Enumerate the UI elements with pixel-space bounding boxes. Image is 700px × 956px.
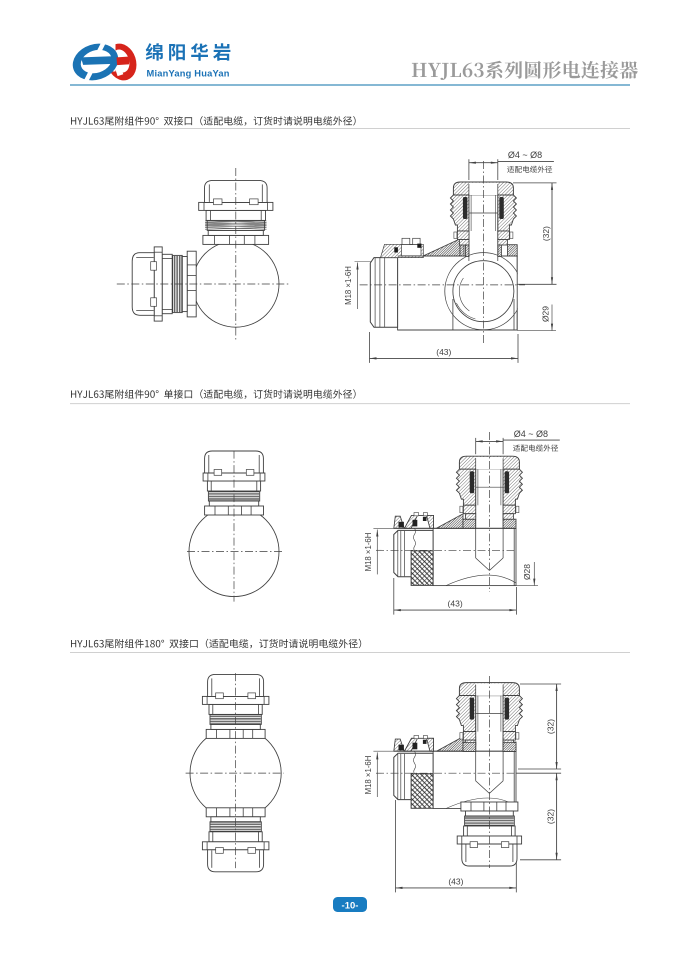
svg-text:MianYang HuaYan: MianYang HuaYan [147, 69, 230, 79]
svg-text:Ø4 ~ Ø8: Ø4 ~ Ø8 [508, 150, 542, 160]
svg-text:(32): (32) [545, 809, 555, 824]
svg-text:M18 ×1-6H: M18 ×1-6H [364, 756, 373, 795]
svg-text:Ø29: Ø29 [540, 306, 550, 322]
svg-text:(43): (43) [436, 347, 451, 357]
svg-text:Ø4 ~ Ø8: Ø4 ~ Ø8 [514, 429, 548, 439]
svg-text:(32): (32) [545, 719, 555, 734]
svg-text:(32): (32) [541, 226, 551, 241]
svg-text:(43): (43) [448, 599, 463, 609]
svg-text:(43): (43) [448, 876, 463, 886]
svg-text:-10-: -10- [342, 901, 359, 912]
svg-text:Ø28: Ø28 [522, 564, 532, 580]
svg-text:M18 ×1-6H: M18 ×1-6H [364, 533, 373, 572]
svg-text:M18 ×1-6H: M18 ×1-6H [344, 266, 353, 305]
